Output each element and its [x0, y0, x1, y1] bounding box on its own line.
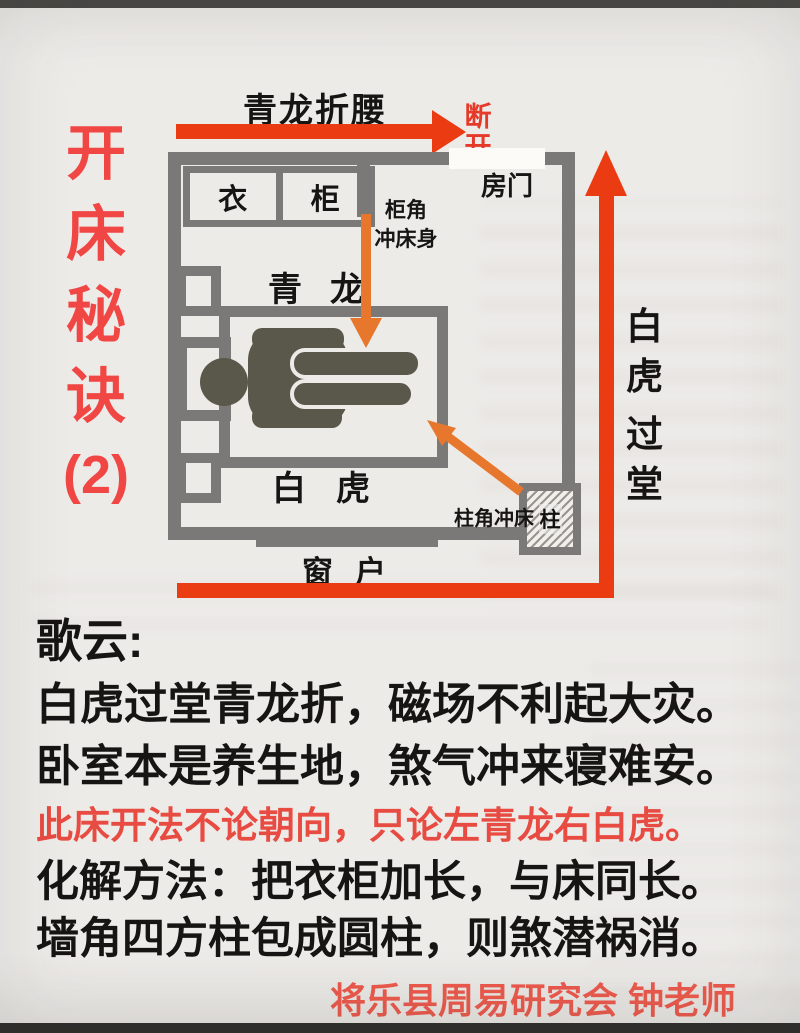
- verse-line-1: 白虎过堂青龙折，磁场不利起大灾。: [36, 683, 740, 727]
- baihu-guotang-char: 虎: [626, 358, 663, 395]
- verse-line-2: 卧室本是养生地，煞气冲来寝难安。: [36, 745, 740, 789]
- sleeping-person-icon: [196, 322, 436, 457]
- qinglong-zone-label: 青龙: [268, 262, 392, 311]
- baihu-zone-label: 白虎: [272, 461, 400, 510]
- wardrobe-label-left: 衣: [190, 173, 276, 220]
- break-char: 断: [463, 102, 493, 132]
- series-title-char: 床: [66, 205, 126, 265]
- left-wall-niche-lower: [176, 453, 221, 503]
- window-end-cap: [256, 534, 265, 547]
- series-title-char: 秘: [66, 286, 126, 346]
- cabinet-warning-label: 柜角 冲床身: [371, 196, 441, 255]
- door-label: 房门: [481, 166, 533, 203]
- verse-heading: 歌云:: [36, 618, 143, 664]
- series-title: 开 床 秘 诀 (2): [50, 124, 142, 502]
- baihu-guotang-char: 堂: [626, 466, 663, 503]
- pillar-warning-label: 柱角冲床: [454, 502, 534, 531]
- window-end-cap: [429, 534, 438, 547]
- left-wall-niche-upper: [176, 266, 221, 316]
- red-path-bottom-shaft: [177, 583, 614, 598]
- red-path-right-shaft: [599, 194, 614, 598]
- baihu-guotang-char: 过: [626, 416, 663, 453]
- verse-line-5: 墙角四方柱包成圆柱，则煞潜祸消。: [36, 918, 724, 961]
- cabinet-warning-line1: 柜角: [371, 196, 441, 225]
- top-edge-bar: [0, 0, 800, 8]
- baihu-guotang-label: 白 虎 过 堂: [626, 308, 663, 503]
- cabinet-warning-line2: 冲床身: [371, 225, 441, 254]
- bottom-edge-bar: [0, 1023, 800, 1033]
- verse-line-3-warning: 此床开法不论朝向，只论左青龙右白虎。: [36, 807, 702, 844]
- cabinet-side-wall: [357, 162, 370, 217]
- feng-shui-poster: 开 床 秘 诀 (2) 青龙折腰 断 开 房门 衣 柜 柜角 冲床身 青龙: [0, 0, 800, 1033]
- red-arrow-top-shaft: [176, 124, 432, 139]
- series-title-number: (2): [63, 448, 129, 502]
- window-sill: [256, 539, 438, 547]
- pillar-label: 柱: [539, 504, 562, 534]
- series-title-char: 诀: [66, 367, 126, 427]
- series-title-char: 开: [66, 124, 126, 184]
- red-arrow-up-head-icon: [585, 150, 627, 196]
- wardrobe-label-right: 柜: [283, 173, 369, 220]
- baihu-guotang-char: 白: [626, 308, 663, 345]
- wardrobe-divider: [276, 173, 283, 220]
- wardrobe: 衣 柜: [183, 166, 375, 227]
- room-wall-right: [562, 152, 575, 540]
- verse-line-4: 化解方法：把衣柜加长，与床同长。: [36, 861, 724, 904]
- attribution: 将乐县周易研究会 钟老师: [330, 972, 736, 1024]
